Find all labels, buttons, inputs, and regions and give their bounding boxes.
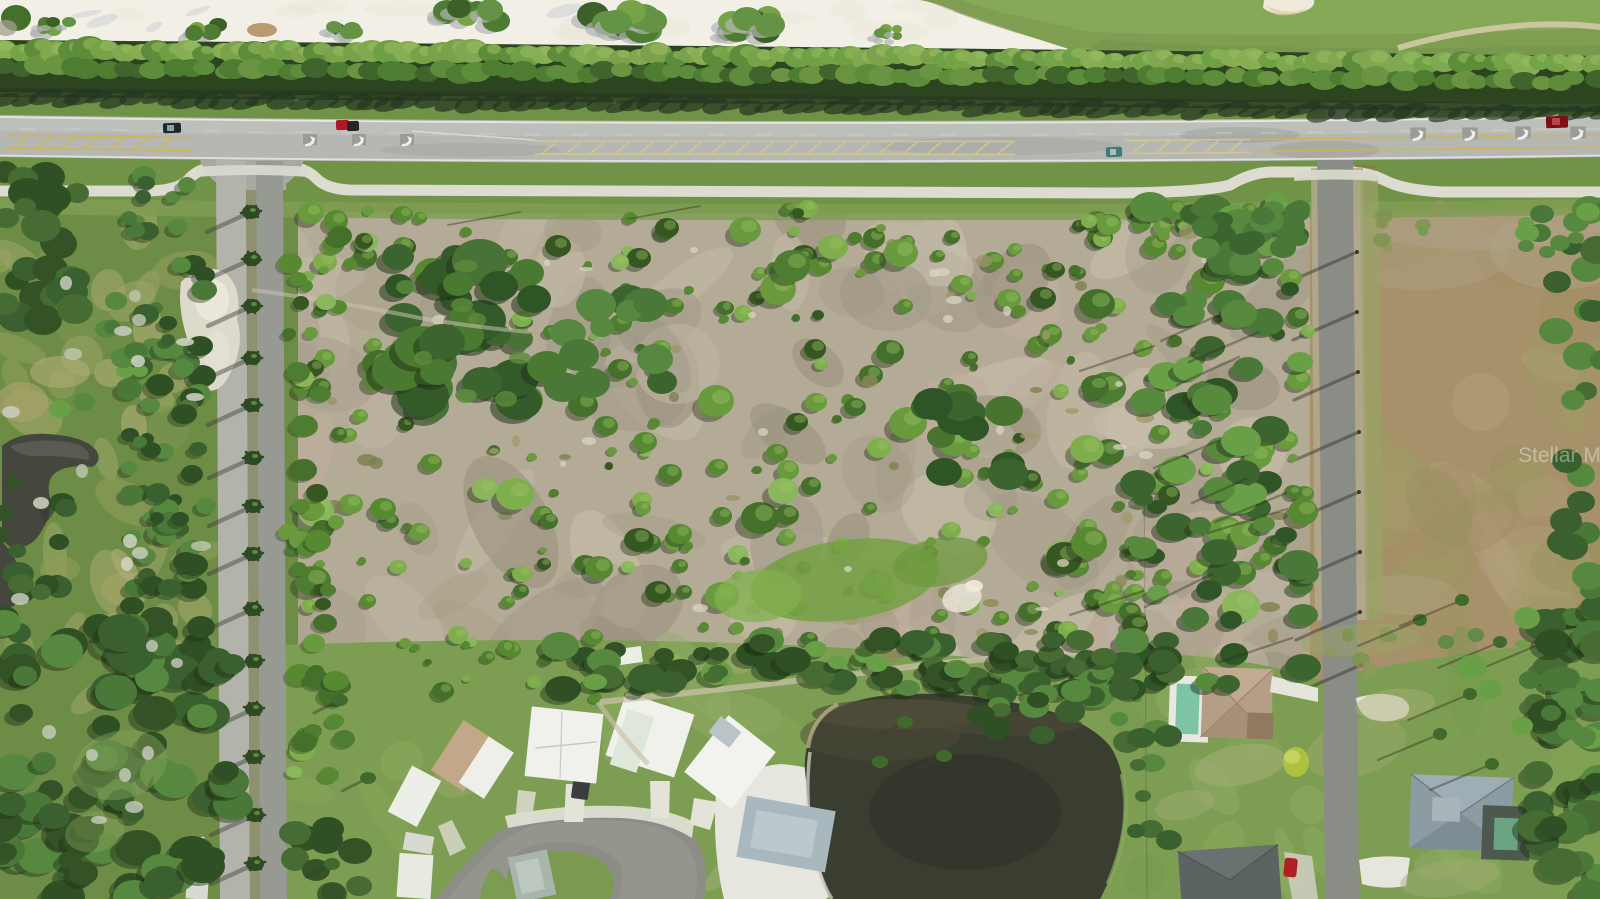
svg-text:Stellar MLS: Stellar MLS — [1518, 444, 1600, 467]
